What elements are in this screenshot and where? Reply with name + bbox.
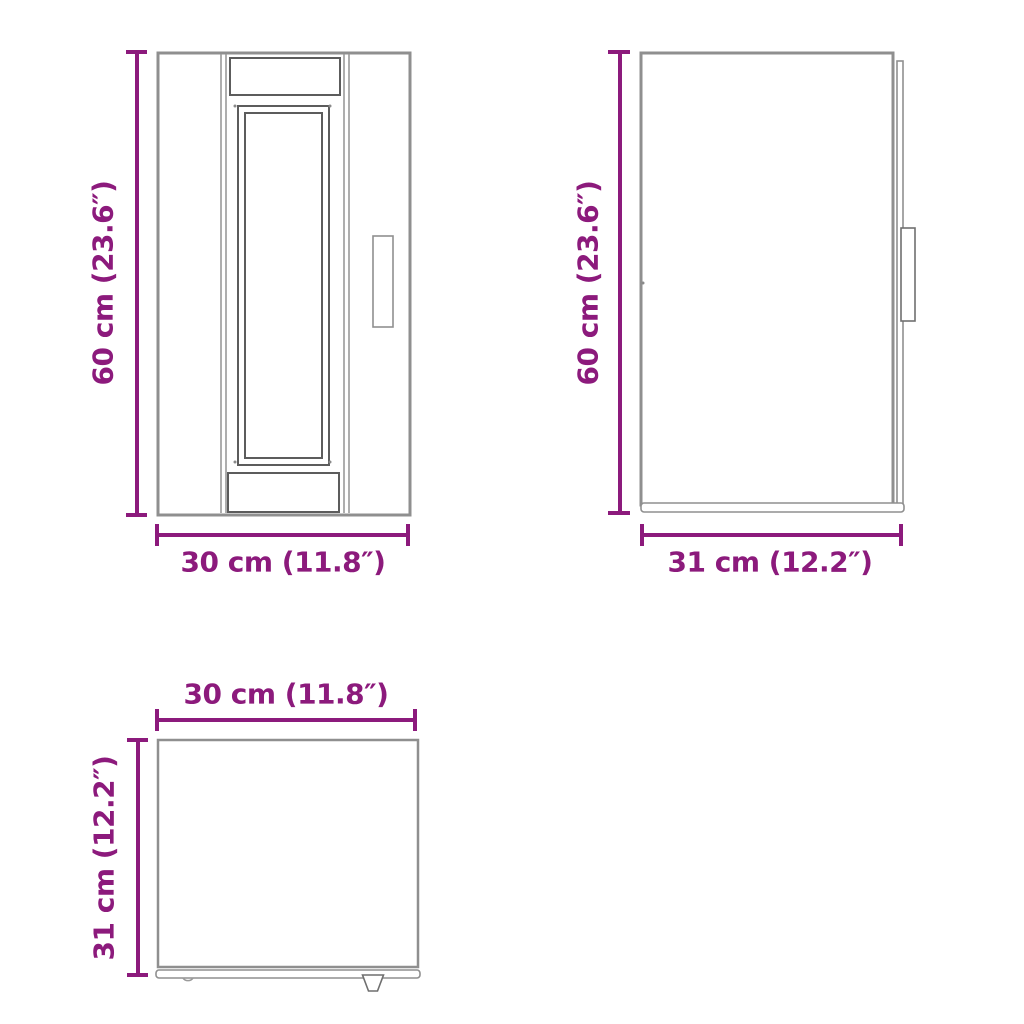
side-height-top-tick	[608, 50, 630, 54]
top-depth-bottom-tick	[127, 973, 148, 977]
top-cabinet-outline	[158, 740, 418, 967]
side-height-bottom-tick	[608, 511, 630, 515]
front-width-left-tick	[155, 524, 159, 546]
side-hinge-dot	[642, 282, 645, 285]
top-view-drawing	[150, 730, 430, 1005]
front-width-dimension-line	[157, 533, 410, 537]
side-depth-right-tick	[899, 524, 903, 546]
front-view-drawing	[150, 45, 420, 525]
top-depth-dimension-line	[136, 740, 140, 977]
top-depth-label: 31 cm (12.2″)	[88, 756, 121, 961]
front-handle	[373, 236, 393, 327]
front-door-glass-panel	[245, 113, 322, 458]
top-width-right-tick	[413, 709, 417, 731]
side-height-label: 60 cm (23.6″)	[572, 181, 605, 386]
front-bottom-panel	[228, 473, 339, 512]
front-screw-dot-bottom-left	[234, 461, 237, 464]
front-screw-dot-bottom-right	[329, 461, 332, 464]
front-width-label: 30 cm (11.8″)	[181, 546, 386, 579]
side-height-dimension-line	[618, 52, 622, 513]
side-cabinet-outline	[641, 53, 893, 505]
front-height-top-tick	[126, 50, 147, 54]
side-depth-label: 31 cm (12.2″)	[668, 546, 873, 579]
top-width-left-tick	[155, 709, 159, 731]
front-screw-dot-top-right	[329, 105, 332, 108]
front-height-bottom-tick	[126, 513, 147, 517]
front-screw-dot-top-left	[234, 105, 237, 108]
front-height-dimension-line	[135, 52, 139, 515]
front-top-panel	[230, 58, 340, 95]
top-width-label: 30 cm (11.8″)	[184, 678, 389, 711]
front-height-label: 60 cm (23.6″)	[87, 181, 120, 386]
top-depth-top-tick	[127, 738, 148, 742]
front-width-right-tick	[406, 524, 410, 546]
cabinet-dimension-diagram: 60 cm (23.6″) 30 cm (11.8″) 60 cm (23.6″…	[0, 0, 1024, 1024]
side-handle	[901, 228, 915, 321]
side-view-drawing	[610, 45, 930, 525]
side-depth-dimension-line	[642, 533, 902, 537]
side-bottom-edge	[641, 503, 904, 512]
side-depth-left-tick	[640, 524, 644, 546]
top-width-dimension-line	[157, 718, 415, 722]
top-handle	[363, 975, 384, 991]
